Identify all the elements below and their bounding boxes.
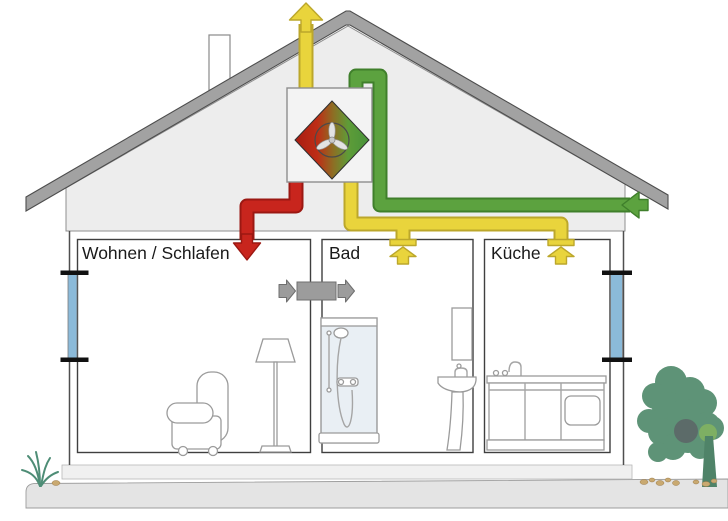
room-label-kueche: Küche: [491, 243, 541, 263]
mirror: [452, 308, 472, 360]
fresh-air-inlet-arrow-icon: [622, 192, 648, 218]
house-base-slab: [62, 465, 632, 479]
ground: [26, 479, 728, 508]
ventilation-diagram: Wohnen / Schlafen Bad Küche: [0, 0, 728, 521]
shower: [319, 318, 379, 443]
grass-tuft: [22, 452, 60, 486]
room-label-wohnen-schlafen: Wohnen / Schlafen: [82, 243, 230, 263]
room-label-bad: Bad: [329, 243, 360, 263]
extract-grille-kueche: [548, 240, 574, 246]
tree: [637, 366, 724, 487]
heat-exchanger-unit: [287, 88, 372, 182]
oven: [565, 396, 600, 425]
house-cross-section: Wohnen / Schlafen Bad Küche: [0, 0, 728, 521]
extract-grille-bad: [390, 240, 416, 246]
